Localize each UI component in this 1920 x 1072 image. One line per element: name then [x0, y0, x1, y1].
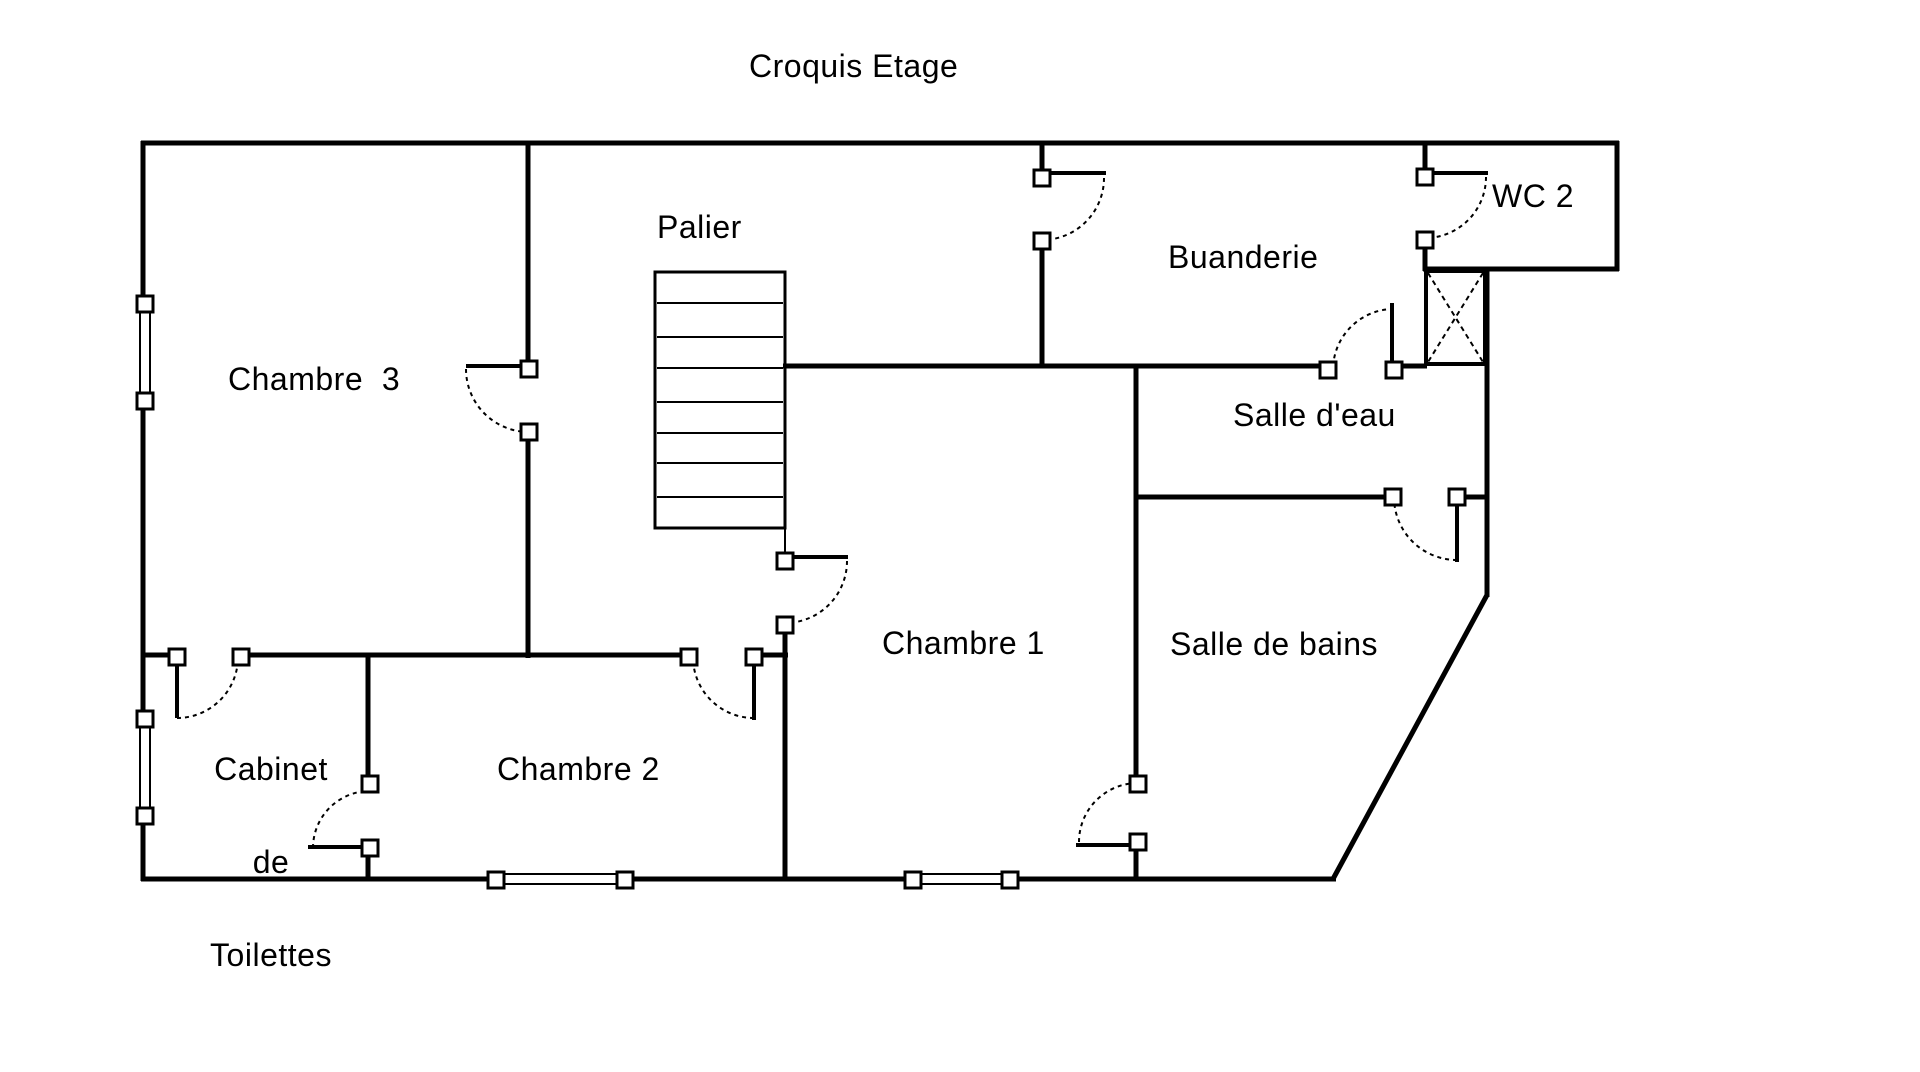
cabinet-label-line2: de — [171, 847, 371, 878]
window-bottom-chambre1 — [905, 872, 1018, 888]
door-jamb — [777, 553, 793, 569]
window-bottom-chambre2 — [488, 872, 633, 888]
stair-outline — [655, 272, 785, 528]
door-jamb — [169, 649, 185, 665]
door-wc2 — [1417, 169, 1488, 248]
window-left-lower — [137, 711, 153, 824]
room-label-wc2: WC 2 — [1492, 180, 1574, 212]
door-jamb — [1320, 362, 1336, 378]
room-label-salle-de-bains: Salle de bains — [1170, 628, 1378, 660]
window-jamb — [137, 296, 153, 312]
door-chambre2 — [681, 649, 762, 720]
door-jamb — [1385, 489, 1401, 505]
window-jamb — [905, 872, 921, 888]
window-jamb — [137, 711, 153, 727]
door-jamb — [521, 424, 537, 440]
window-left-upper — [137, 296, 153, 409]
room-label-chambre1: Chambre 1 — [882, 627, 1045, 659]
door-buanderie-to-salle-eau — [1320, 303, 1402, 378]
cabinet-label-line1: Cabinet — [171, 754, 371, 785]
door-jamb — [1449, 489, 1465, 505]
window-jamb — [488, 872, 504, 888]
plan-title: Croquis Etage — [749, 50, 958, 82]
door-jamb — [1386, 362, 1402, 378]
room-label-salle-eau: Salle d'eau — [1233, 399, 1396, 431]
chimney-duct — [1426, 271, 1485, 364]
cabinet-label-line3: Toilettes — [171, 940, 371, 971]
door-jamb — [777, 617, 793, 633]
door-salle-de-bains — [1076, 776, 1146, 850]
room-label-palier: Palier — [657, 211, 742, 243]
floor-plan-canvas: Croquis Etage Palier Chambre 3 Buanderie… — [0, 0, 1920, 1072]
door-jamb — [521, 361, 537, 377]
window-jamb — [137, 808, 153, 824]
door-jamb — [1130, 834, 1146, 850]
staircase — [655, 272, 785, 554]
door-salle-eau-to-salle-de-bains — [1385, 489, 1465, 562]
door-jamb — [1034, 233, 1050, 249]
room-label-chambre3: Chambre 3 — [228, 363, 400, 395]
door-jamb — [1417, 232, 1433, 248]
door-jamb — [1034, 170, 1050, 186]
window-jamb — [617, 872, 633, 888]
door-jamb — [681, 649, 697, 665]
door-chambre1 — [777, 553, 848, 633]
door-jamb — [1130, 776, 1146, 792]
door-jamb — [746, 649, 762, 665]
room-label-chambre2: Chambre 2 — [497, 753, 660, 785]
duct-cross-line — [1428, 273, 1483, 362]
room-label-cabinet-de-toilettes: Cabinet de Toilettes — [171, 692, 371, 1033]
duct-cross-line — [1428, 273, 1483, 362]
room-label-buanderie: Buanderie — [1168, 241, 1318, 273]
window-jamb — [137, 393, 153, 409]
door-chambre3 — [466, 361, 537, 440]
window-jamb — [1002, 872, 1018, 888]
door-buanderie-entry — [1034, 170, 1106, 249]
door-jamb — [233, 649, 249, 665]
door-jamb — [1417, 169, 1433, 185]
